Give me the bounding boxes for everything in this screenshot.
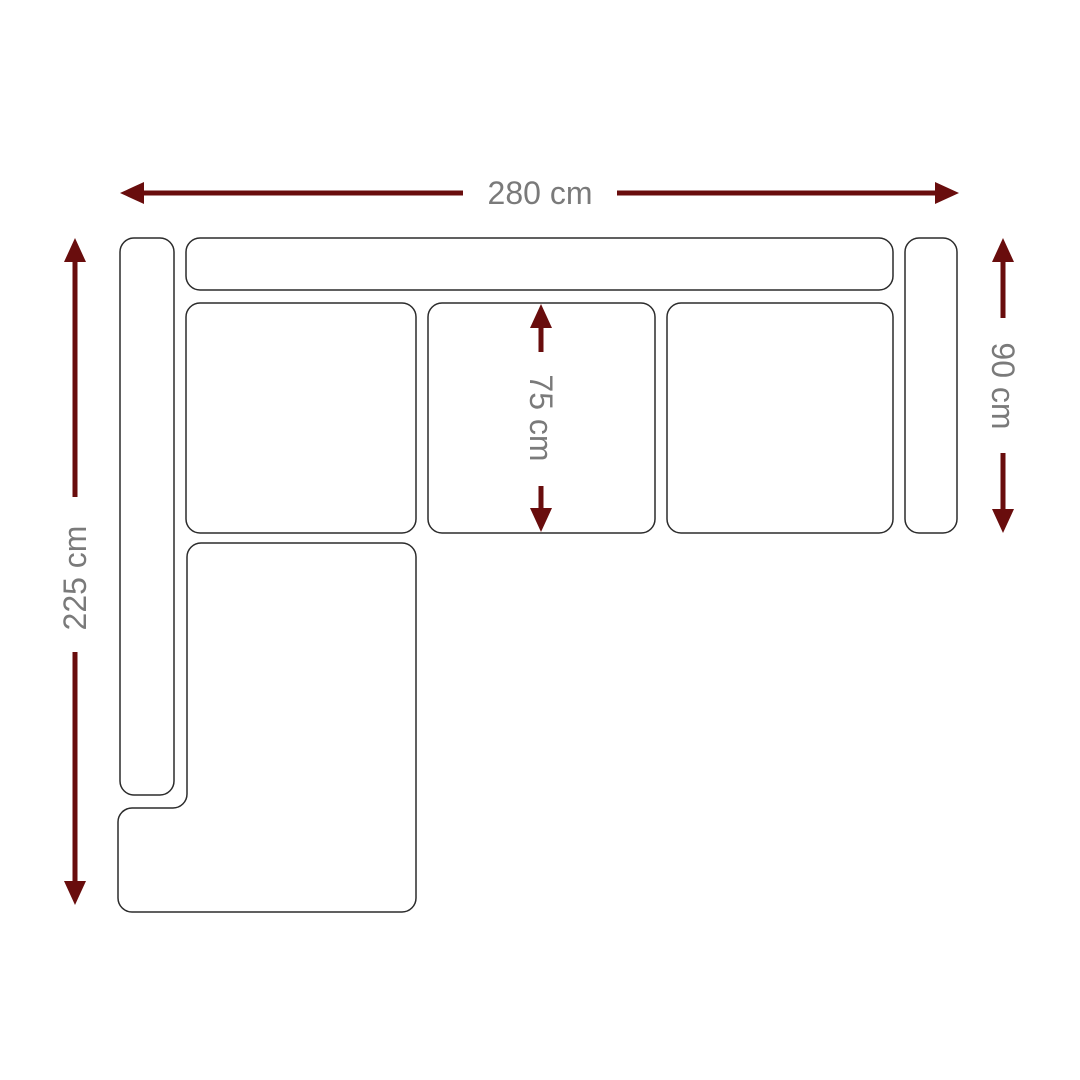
right-armrest-outline: [905, 238, 957, 533]
total-depth-dimension: 225 cm: [57, 238, 93, 905]
seat-cushion-left: [186, 303, 416, 533]
arrow-up-icon: [64, 238, 86, 262]
sofa-depth-label: 90 cm: [985, 342, 1021, 429]
sofa-dimension-diagram: 280 cm 225 cm 90 cm 75 cm: [0, 0, 1080, 1080]
arrow-down-icon: [992, 509, 1014, 533]
left-armrest-outline: [120, 238, 174, 795]
backrest-outline: [186, 238, 893, 290]
sofa-depth-dimension: 90 cm: [985, 238, 1021, 533]
diagram-svg: 280 cm 225 cm 90 cm 75 cm: [0, 0, 1080, 1080]
sofa-outline: [118, 238, 957, 912]
seat-cushion-right: [667, 303, 893, 533]
arrow-up-icon: [992, 238, 1014, 262]
arrow-right-icon: [935, 182, 959, 204]
total-width-dimension: 280 cm: [120, 175, 959, 211]
arrow-left-icon: [120, 182, 144, 204]
total-width-label: 280 cm: [488, 175, 593, 211]
arrow-down-icon: [64, 881, 86, 905]
seat-depth-label: 75 cm: [523, 374, 559, 461]
total-depth-label: 225 cm: [57, 526, 93, 631]
